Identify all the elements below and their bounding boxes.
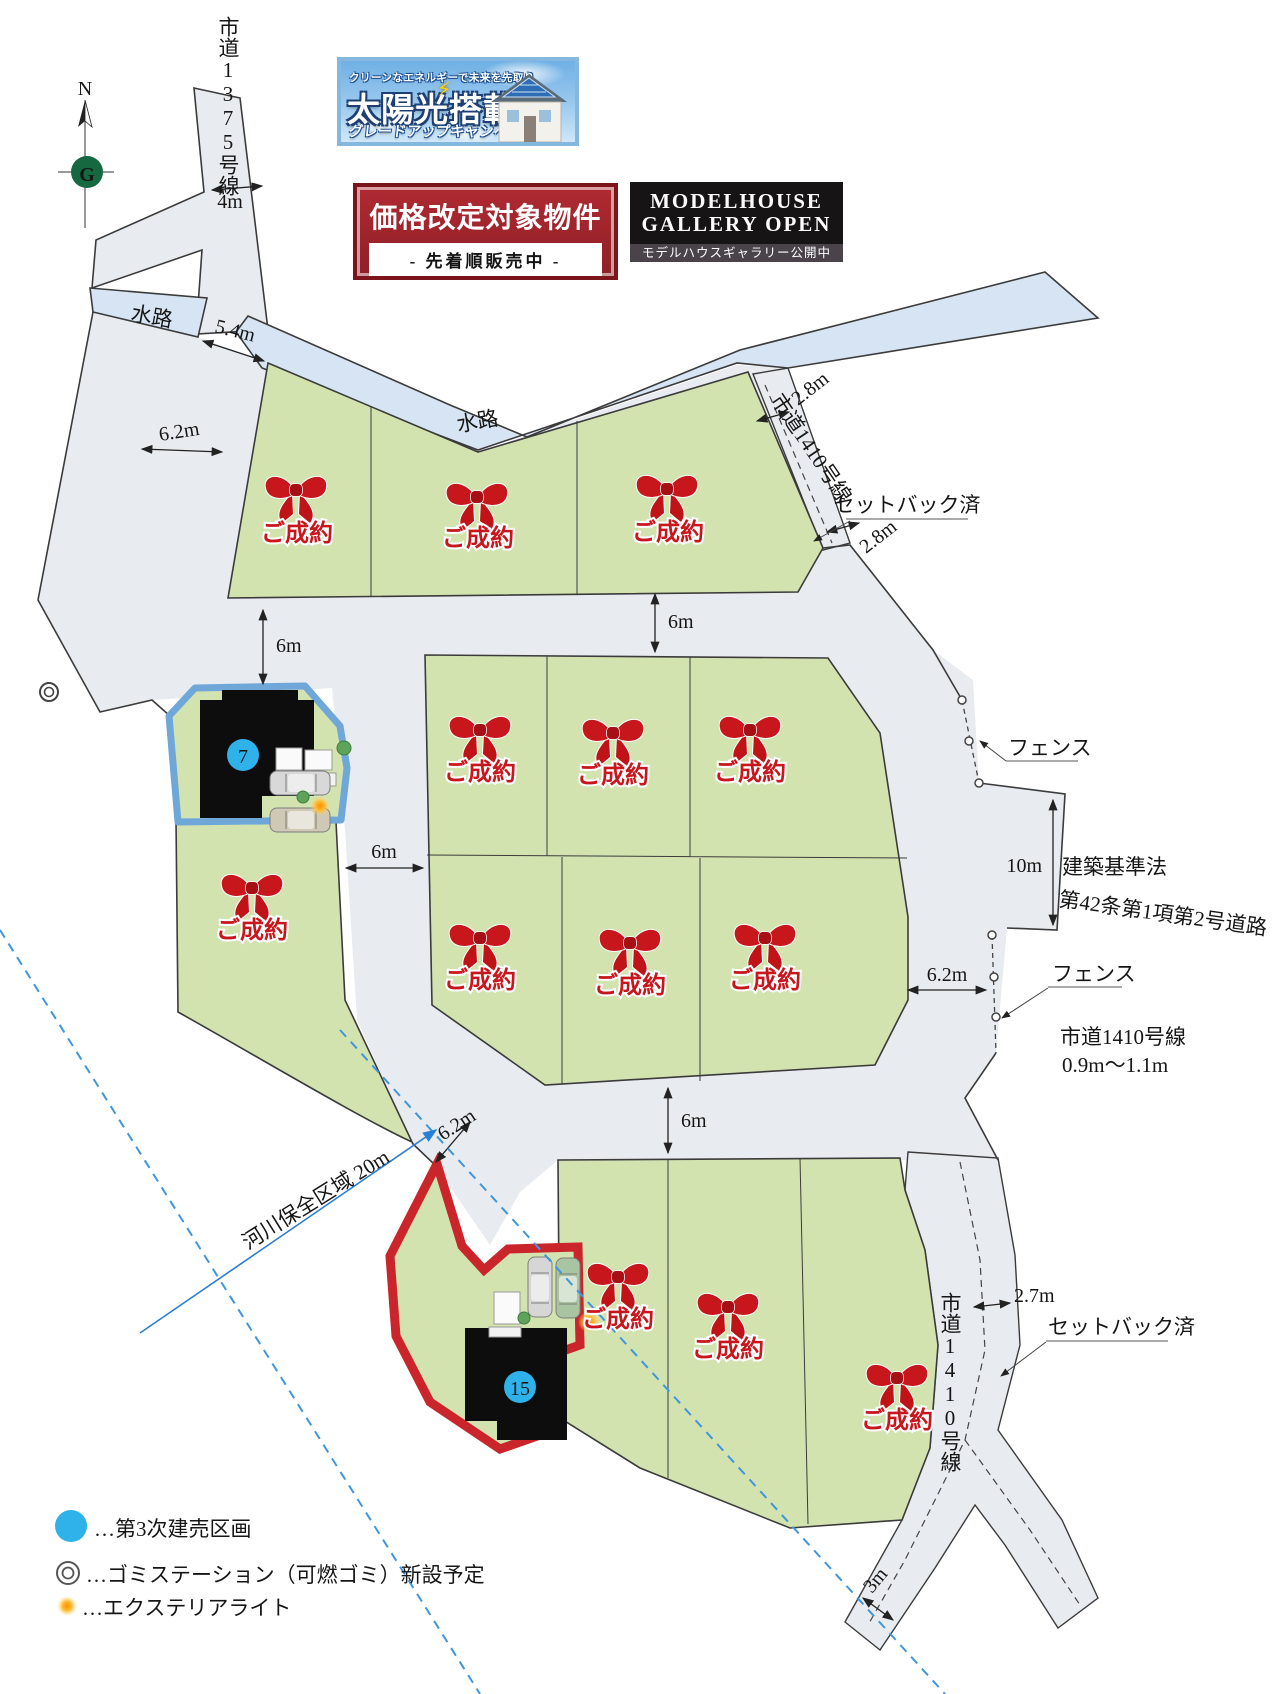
river-zone-label: 河川保全区域 20m (238, 1145, 394, 1255)
lot-7: 7 (169, 686, 351, 832)
legend-garbage-icon (57, 1562, 79, 1584)
fence-label-upper: フェンス (980, 736, 1092, 761)
solar-house-illustration (487, 68, 573, 142)
road-1410-south-label: 市道1410号線 (938, 1292, 962, 1472)
svg-text:ご成約: ご成約 (216, 916, 288, 944)
dim-6-2m-east: 6.2m (927, 964, 968, 986)
svg-text:ご成約: ご成約 (582, 1305, 654, 1333)
legend-light-label: …エクステリアライト (82, 1596, 291, 1620)
shrub (297, 791, 309, 803)
north-compass: N G (58, 78, 114, 228)
car (528, 1257, 552, 1317)
svg-text:セットバック済: セットバック済 (1048, 1315, 1195, 1339)
building-code-line2: 第42条第1項第2号道路 (1057, 887, 1268, 940)
modelhouse-title-line2: GALLERY OPEN (642, 213, 832, 236)
svg-text:ご成約: ご成約 (442, 524, 514, 552)
legend-phase3-icon (55, 1510, 87, 1542)
price-banner-subtitle: - 先着順販売中 - (369, 243, 602, 276)
company-logo-letter: G (79, 164, 95, 186)
north-label: N (78, 78, 92, 100)
svg-text:ご成約: ご成約 (444, 966, 516, 994)
svg-text:フェンス: フェンス (1052, 962, 1136, 986)
dim-10m: 10m (1006, 855, 1042, 877)
svg-text:フェンス: フェンス (1008, 736, 1092, 760)
svg-text:ご成約: ご成約 (714, 758, 786, 786)
modelhouse-title-line1: MODELHOUSE (650, 190, 823, 213)
svg-text:ご成約: ご成約 (632, 518, 704, 546)
setback-label-lower: セットバック済 (1001, 1315, 1195, 1376)
dim-6m-1: 6m (276, 635, 302, 657)
legend-phase3-label: …第3次建売区画 (94, 1517, 252, 1541)
shrub (337, 741, 351, 755)
lot-map-page: 7 15 4m (0, 0, 1280, 1694)
shrub (518, 1312, 530, 1324)
building-code-line1: 建築基準法 (1062, 855, 1167, 879)
road-1410-width-label: 0.9m〜1.1m (1062, 1053, 1168, 1077)
price-revision-banner: 価格改定対象物件 - 先着順販売中 - (353, 183, 618, 280)
dim-6m-3: 6m (371, 841, 397, 863)
car (556, 1258, 580, 1318)
legend: …第3次建売区画 …ゴミステーション（可燃ゴミ）新設予定 …エクステリアライト (55, 1510, 485, 1620)
fence-label-lower: フェンス (1002, 962, 1136, 1018)
exterior-light (310, 796, 330, 816)
dim-2-8m-lower: 2.8m (856, 515, 902, 558)
garbage-station-icon (40, 683, 58, 701)
dim-6m-4: 6m (681, 1110, 707, 1132)
lot-15-number: 15 (510, 1378, 530, 1400)
svg-text:ご成約: ご成約 (729, 966, 801, 994)
modelhouse-banner: MODELHOUSE GALLERY OPEN モデルハウスギャラリー公開中 (630, 182, 843, 262)
road-1375-label: 市道1375号線 (216, 16, 240, 196)
svg-text:ご成約: ご成約 (594, 971, 666, 999)
dim-6m-2: 6m (668, 611, 694, 633)
road-1410-east-label: 市道1410号線 (1060, 1025, 1186, 1049)
svg-text:セットバック済: セットバック済 (834, 493, 981, 517)
dim-2-7m: 2.7m (1014, 1285, 1055, 1307)
svg-text:ご成約: ご成約 (444, 758, 516, 786)
modelhouse-subtitle: モデルハウスギャラリー公開中 (630, 244, 843, 262)
price-banner-title: 価格改定対象物件 (357, 196, 614, 236)
svg-text:ご成約: ご成約 (692, 1335, 764, 1363)
svg-text:ご成約: ご成約 (261, 519, 333, 547)
legend-light-icon (57, 1596, 77, 1616)
lightning-icon: ⚡ (437, 77, 451, 101)
svg-text:ご成約: ご成約 (861, 1406, 933, 1434)
svg-text:ご成約: ご成約 (577, 761, 649, 789)
lot-7-number: 7 (238, 746, 248, 768)
solar-campaign-banner: クリーンなエネルギーで未来を先取り 太陽光搭載 ⚡ グレードアップキャンペーン (337, 57, 579, 146)
legend-garbage-label: …ゴミステーション（可燃ゴミ）新設予定 (86, 1563, 485, 1587)
